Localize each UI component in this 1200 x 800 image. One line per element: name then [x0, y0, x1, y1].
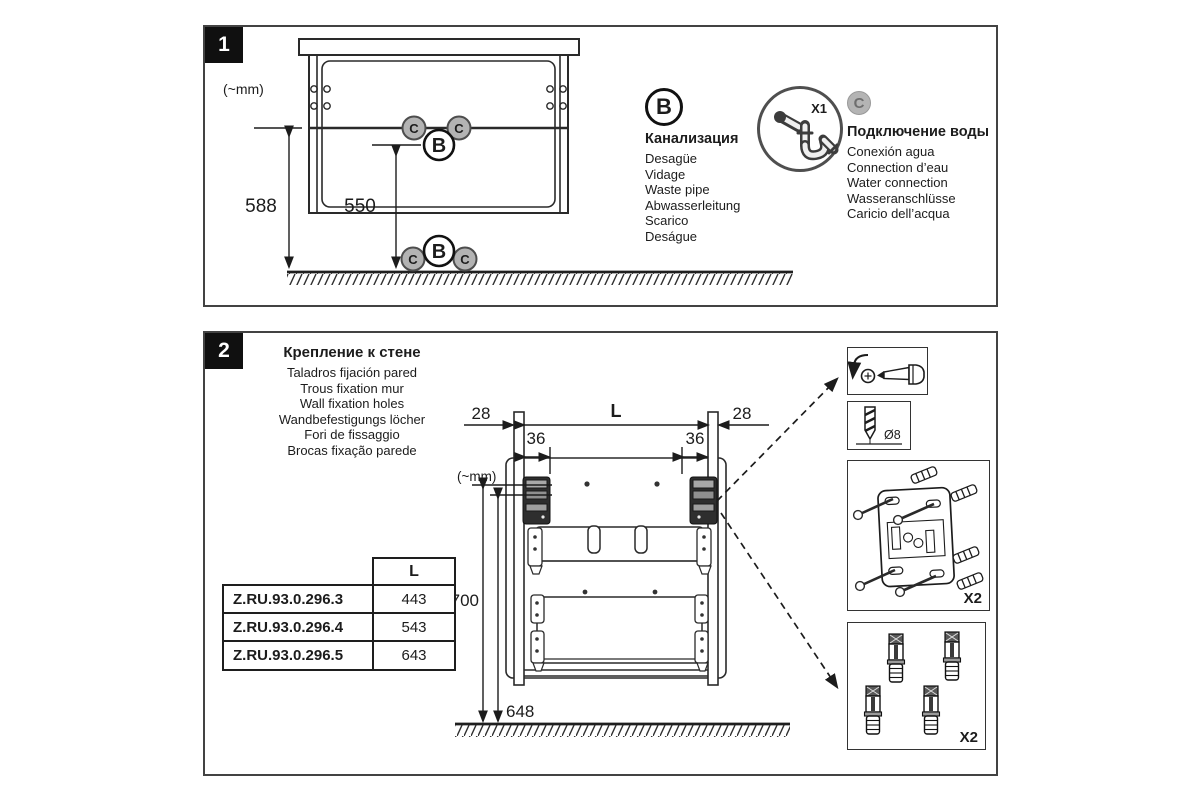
marker-c: C — [460, 252, 470, 267]
model-length-table: L Z.RU.93.0.296.3 443 Z.RU.93.0.296.4 54… — [222, 557, 458, 673]
wall-plug — [865, 686, 882, 734]
legend-line: Connection d’eau — [847, 160, 989, 176]
table-row-model: Z.RU.93.0.296.4 — [222, 612, 374, 642]
legend-waste-pipe: B Канализация Desagüe Vidage Waste pipe … — [645, 88, 740, 245]
wall-bracket-right — [690, 477, 717, 524]
lower-drawer-back — [531, 595, 708, 671]
table-row-length: 643 — [372, 640, 456, 671]
step2-units-label: (~mm) — [457, 469, 496, 484]
dim-36-right: 36 — [686, 429, 705, 448]
waste-marker-letter: B — [656, 94, 672, 120]
table-header-L: L — [372, 557, 456, 586]
legend-line: Scarico — [645, 213, 740, 229]
step1-panel: 1 (~mm) — [203, 25, 998, 307]
legend-line: Deságue — [645, 229, 740, 245]
legend-line: Desagüe — [645, 151, 740, 167]
instruction-sheet: 1 (~mm) — [0, 0, 1200, 800]
marker-b: B — [432, 241, 446, 263]
legend-line: Conexión agua — [847, 144, 989, 160]
legend-line: Water connection — [847, 175, 989, 191]
wall-bracket-left — [523, 477, 550, 524]
legend-water-title: Подключение воды — [847, 124, 989, 140]
table-row-model: Z.RU.93.0.296.5 — [222, 640, 374, 671]
floor — [287, 272, 793, 285]
dim-28-left: 28 — [472, 404, 491, 423]
marker-c: C — [454, 121, 464, 136]
wall-plate-detail-box: X2 — [847, 460, 990, 611]
dim-550: 550 — [344, 196, 376, 217]
connection-markers-floor: C C B — [402, 236, 477, 271]
plug-qty-label: X2 — [960, 729, 978, 746]
dim-36-left: 36 — [527, 429, 546, 448]
drill-bit-icon: Ø8 — [848, 402, 909, 448]
dim-648: 648 — [506, 702, 534, 721]
floor — [455, 724, 790, 737]
table-row-model: Z.RU.93.0.296.3 — [222, 584, 374, 614]
marker-c: C — [408, 252, 418, 267]
waste-marker-icon: B — [645, 88, 683, 126]
dim-588: 588 — [245, 196, 277, 217]
legend-line: Vidage — [645, 167, 740, 183]
siphon-icon — [760, 91, 840, 171]
dim-L: L — [611, 401, 622, 421]
cabinet-body — [299, 39, 579, 213]
marker-b: B — [432, 135, 446, 157]
wall-plug — [944, 632, 961, 680]
legend-line: Waste pipe — [645, 182, 740, 198]
step2-panel: 2 Крепление к стене Taladros fijación pa… — [203, 331, 998, 776]
table-row-length: 443 — [372, 584, 456, 614]
wall-plug — [888, 634, 905, 682]
water-marker-letter: C — [854, 95, 865, 112]
drill-diameter-label: Ø8 — [884, 428, 901, 442]
drill-detail-box: Ø8 — [847, 401, 911, 450]
screwdriver-icon — [848, 348, 926, 393]
bracket-qty-label: X2 — [964, 590, 982, 607]
siphon-detail: X1 — [757, 86, 843, 172]
legend-line: Caricio dell’acqua — [847, 206, 989, 222]
water-marker-icon: C — [847, 91, 871, 115]
screwing-detail-box — [847, 347, 928, 395]
table-row-length: 543 — [372, 612, 456, 642]
wall-plug — [923, 686, 940, 734]
marker-c: C — [409, 121, 419, 136]
legend-water-connection: C Подключение воды Conexión agua Connect… — [847, 91, 989, 222]
dim-28-right: 28 — [733, 404, 752, 423]
wall-plug-detail-box: X2 — [847, 622, 986, 750]
legend-line: Abwasserleitung — [645, 198, 740, 214]
wall-plate-icon — [848, 461, 988, 609]
legend-line: Wasseranschlüsse — [847, 191, 989, 207]
legend-waste-title: Канализация — [645, 131, 740, 147]
